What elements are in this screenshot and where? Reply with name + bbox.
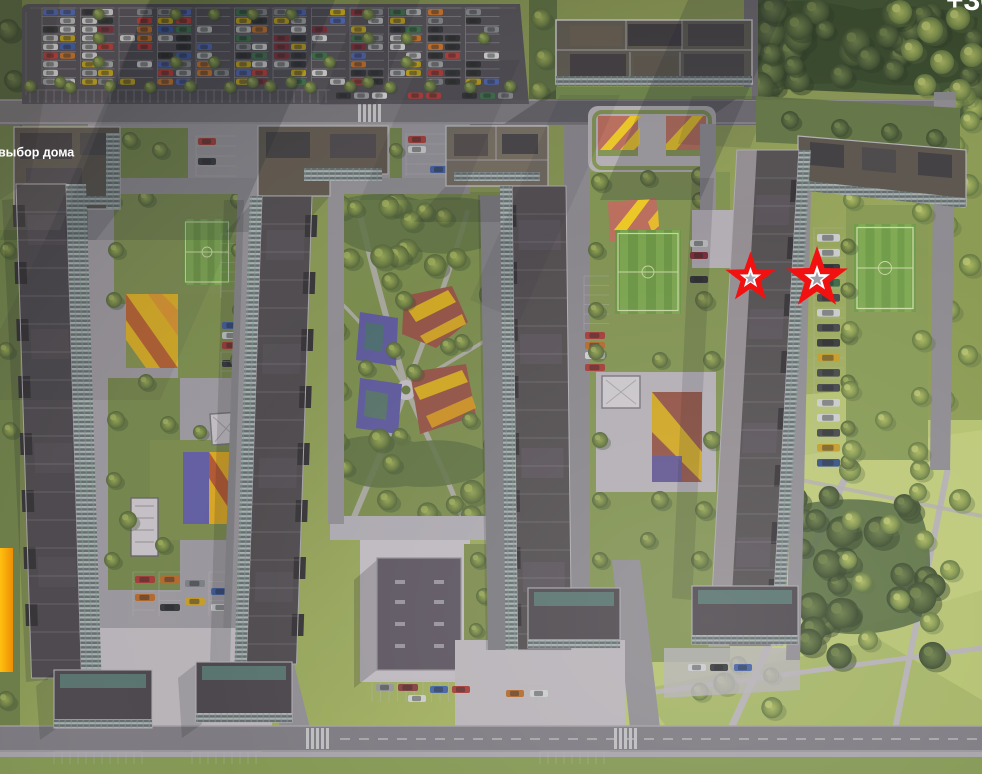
svg-text:+36: +36 bbox=[946, 0, 982, 17]
svg-text:выбор дома: выбор дома bbox=[0, 146, 75, 160]
